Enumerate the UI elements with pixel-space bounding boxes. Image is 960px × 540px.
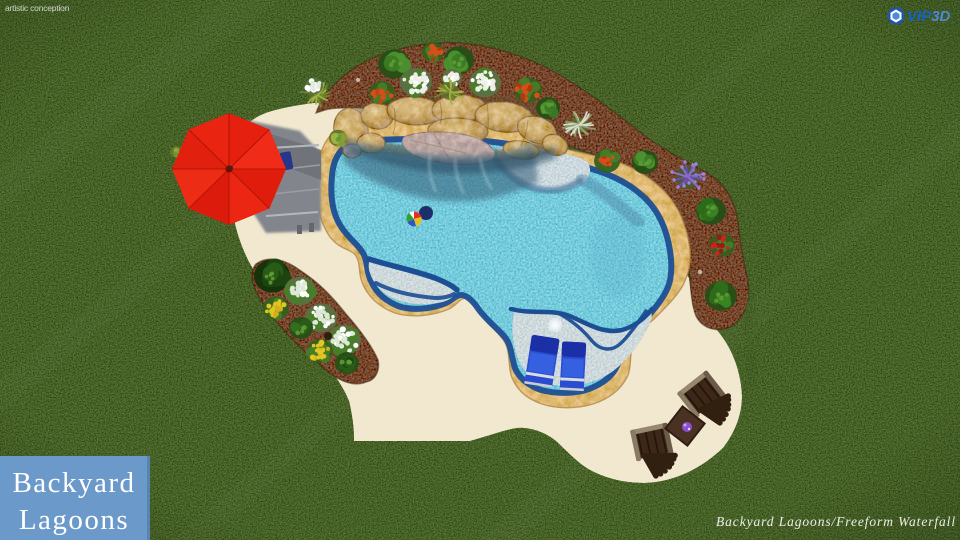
svg-text:VIP3D: VIP3D: [907, 8, 951, 25]
svg-text:Backyard: Backyard: [12, 467, 135, 499]
svg-text:Backyard Lagoons/Freeform Wate: Backyard Lagoons/Freeform Waterfall: [716, 514, 956, 529]
svg-text:Lagoons: Lagoons: [19, 504, 129, 536]
svg-text:artistic conception: artistic conception: [5, 3, 70, 13]
